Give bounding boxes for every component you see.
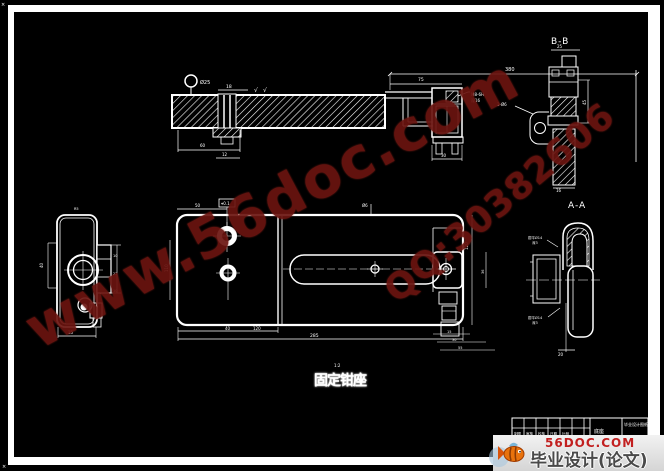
side-view [48, 215, 121, 338]
section-aa-view: A-A [526, 201, 600, 352]
dim-label: 锪平Ø14 [528, 235, 543, 240]
hatched-body [172, 95, 385, 128]
dim-label: 25 [68, 330, 74, 335]
tb-drawing-no: 毕业设计图纸 [624, 421, 648, 427]
slot [290, 255, 440, 284]
dim-label: 2-Ø6 [497, 102, 507, 107]
dim-label: 1:2 [334, 363, 341, 368]
dim-label: 锪平Ø14 [528, 315, 543, 320]
dim-label: ⌖0.1 [221, 201, 230, 206]
j-bar [568, 266, 593, 337]
dim-label: 75 [418, 77, 424, 83]
dim-label: × [1, 2, 5, 8]
dim-label: 285 [310, 333, 319, 339]
dim-label: 10 [113, 254, 117, 258]
dim-label: × [2, 464, 6, 470]
dim-label: 18 [226, 84, 232, 90]
plan-view [170, 199, 495, 350]
dim-label: 25 [557, 44, 563, 49]
end-block [432, 88, 463, 154]
dim-label: √ [263, 87, 267, 94]
clamp-hook [530, 112, 549, 144]
dim-label: √ [254, 87, 258, 94]
section-aa-label: A-A [568, 201, 586, 211]
dim-label: 120 [253, 326, 261, 331]
dim-label: 15 [447, 330, 451, 334]
datum-circle-symbol [185, 75, 197, 87]
dim-label: 45 [582, 99, 587, 105]
dim-label: 36 [481, 270, 485, 274]
view-title: 固定钳座 [314, 370, 366, 390]
dim-label: R5 [74, 207, 79, 211]
site-logo: 56DOC.COM 毕业设计(论文)网 [493, 435, 664, 471]
tb-part-name: 底座 [594, 428, 604, 435]
dim-label: 12 [222, 152, 228, 157]
dim-label: 深16 [471, 97, 481, 103]
dim-label: 60 [200, 143, 206, 148]
drawing-canvas: B-B A-A [0, 0, 664, 471]
dim-label: 40 [225, 326, 231, 331]
logo-site-name: 毕业设计(论文)网 [530, 446, 664, 471]
section-bb-view: B-B [515, 37, 590, 188]
dim-label: 55 [458, 346, 462, 350]
dim-label: × [10, 10, 14, 16]
dim-label: 10 [113, 289, 117, 293]
dim-label: 30 [441, 153, 447, 158]
dim-label: 20 [558, 352, 564, 357]
dim-label: 16 [556, 188, 562, 193]
dim-label: 深3 [532, 320, 538, 325]
dim-label: 50 [195, 203, 201, 208]
dim-label: 22 [113, 272, 117, 276]
dim-label: 深3 [532, 240, 538, 245]
dim-label: 120 [464, 242, 469, 250]
dim-label: Ø25 [200, 79, 210, 86]
cad-drawing-sheet: B-B A-A [0, 0, 664, 471]
end-boss [433, 252, 462, 288]
dim-label: 30 [452, 338, 456, 342]
fish-icon [497, 439, 529, 467]
dim-label: 110 [164, 264, 169, 272]
dim-label: 380 [505, 67, 515, 73]
dim-label: M8-6H [471, 92, 484, 97]
dim-label: Ø6 [362, 203, 368, 208]
dim-label: 40 [39, 262, 44, 268]
